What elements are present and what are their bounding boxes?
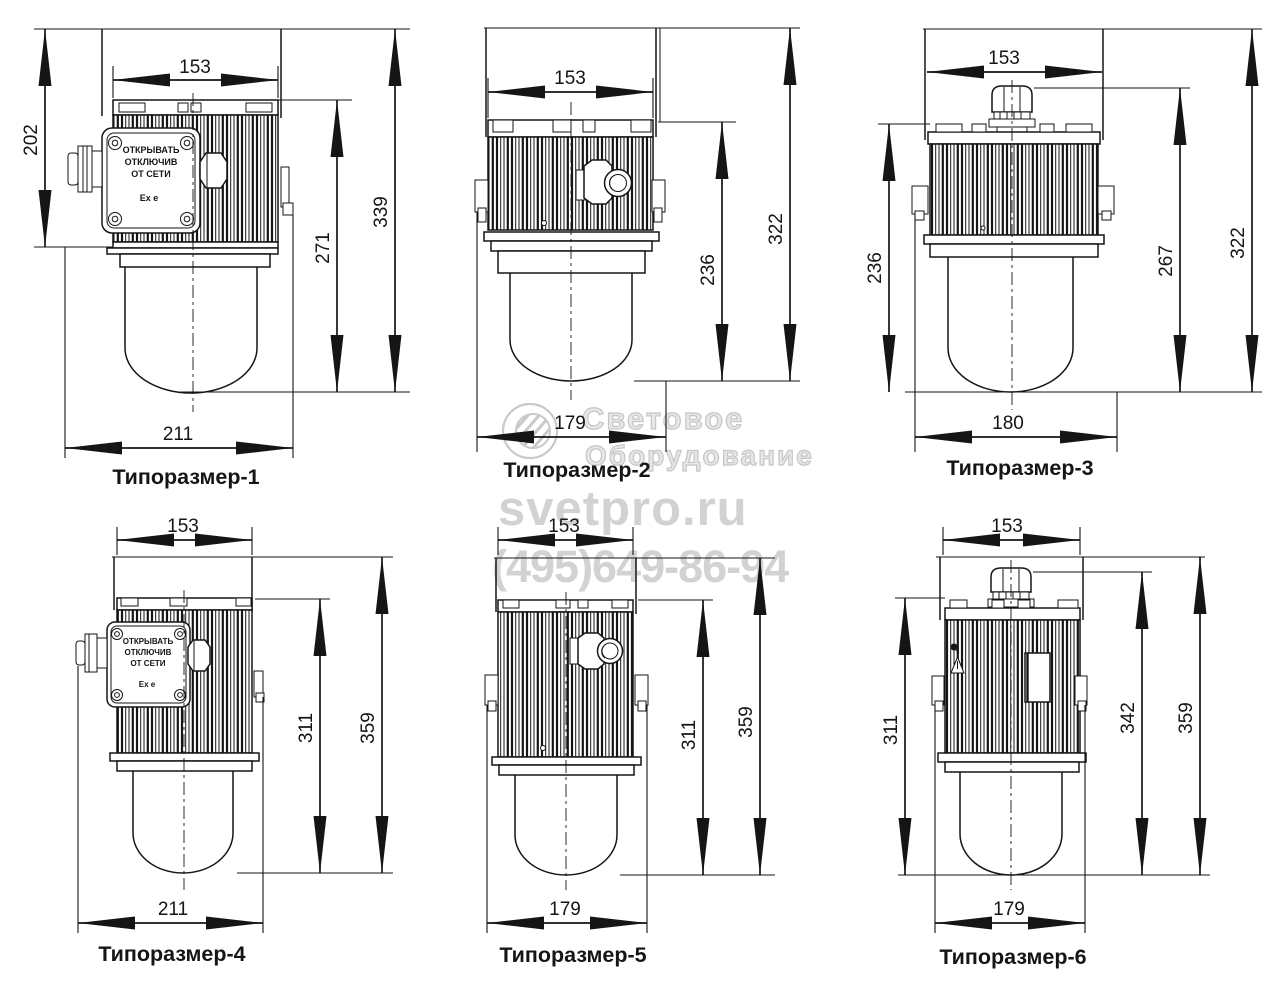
figure-size2: 153 236 322 179 Типоразмер-2 xyxy=(475,28,800,482)
box-ex-marking: Ex e xyxy=(139,680,156,689)
weep-hole xyxy=(981,226,985,230)
dim-bottom-width: 180 xyxy=(992,413,1024,434)
plug-icon xyxy=(188,640,210,671)
nameplate xyxy=(1025,653,1050,702)
cable-gland-side xyxy=(76,634,107,672)
dim-inner-height: 271 xyxy=(313,232,334,264)
box-warning-line3: ОТ СЕТИ xyxy=(131,169,170,179)
dim-left-height: 311 xyxy=(881,715,902,745)
cable-gland-side xyxy=(68,146,102,192)
dim-bottom-width: 211 xyxy=(163,424,193,445)
dim-bottom-width: 179 xyxy=(993,899,1025,920)
weep-hole xyxy=(541,746,546,751)
dim-outer-height: 359 xyxy=(736,706,757,738)
dim-outer-height: 359 xyxy=(358,712,379,744)
figure-caption: Типоразмер-3 xyxy=(946,456,1093,480)
dim-inner-height: 267 xyxy=(1156,245,1177,277)
box-warning-line2: ОТКЛЮЧИВ xyxy=(125,648,172,657)
figure-size5: 153 311 359 179 Типоразмер-5 xyxy=(485,516,775,967)
dim-top-width: 153 xyxy=(991,516,1023,537)
figure-caption: Типоразмер-4 xyxy=(98,942,245,966)
dim-bottom-width: 179 xyxy=(549,899,581,920)
figure-size3: 153 236 267 322 180 Типоразмер-3 xyxy=(865,29,1262,480)
dim-outer-height: 359 xyxy=(1176,702,1197,734)
figure-caption: Типоразмер-2 xyxy=(503,458,650,482)
figure-caption: Типоразмер-6 xyxy=(939,945,1086,969)
dim-outer-height: 322 xyxy=(766,213,787,245)
plug-icon xyxy=(200,153,227,188)
dim-bottom-width: 179 xyxy=(554,413,586,434)
dim-top-width: 153 xyxy=(554,68,586,89)
figure-caption: Типоразмер-5 xyxy=(499,943,646,967)
dim-top-width: 153 xyxy=(988,48,1020,69)
box-warning-line2: ОТКЛЮЧИВ xyxy=(125,157,178,167)
figure-size1: ОТКРЫВАТЬ ОТКЛЮЧИВ ОТ СЕТИ Ex e 153 xyxy=(21,29,410,489)
dim-inner-height: 311 xyxy=(679,720,700,750)
weep-hole xyxy=(542,221,547,226)
dim-top-width: 153 xyxy=(179,57,211,78)
dim-top-width: 153 xyxy=(548,516,580,537)
drawing-sheet: Световое Оборудование svetpro.ru (495)64… xyxy=(0,0,1280,988)
dim-bottom-width: 211 xyxy=(158,899,188,920)
dim-inner-height: 311 xyxy=(296,713,317,743)
dimension-drawing: ОТКРЫВАТЬ ОТКЛЮЧИВ ОТ СЕТИ Ex e 153 xyxy=(0,0,1280,988)
dim-left-height: 236 xyxy=(865,252,886,284)
dim-inner-height: 342 xyxy=(1118,702,1139,734)
box-warning-line3: ОТ СЕТИ xyxy=(130,659,165,668)
figure-size4: ОТКРЫВАТЬ ОТКЛЮЧИВ ОТ СЕТИ Ex e 153 xyxy=(76,516,393,966)
box-warning-line1: ОТКРЫВАТЬ xyxy=(123,637,174,646)
box-ex-marking: Ex e xyxy=(140,193,159,203)
dim-outer-height: 339 xyxy=(371,196,392,228)
dim-inner-height: 236 xyxy=(698,254,719,286)
figure-caption: Типоразмер-1 xyxy=(112,465,259,489)
dim-top-width: 153 xyxy=(167,516,199,537)
figure-size6: 153 311 342 359 179 Типоразмер-6 xyxy=(881,516,1210,969)
dim-left-height: 202 xyxy=(21,124,42,156)
dim-outer-height: 322 xyxy=(1228,227,1249,259)
box-warning-line1: ОТКРЫВАТЬ xyxy=(123,145,180,155)
